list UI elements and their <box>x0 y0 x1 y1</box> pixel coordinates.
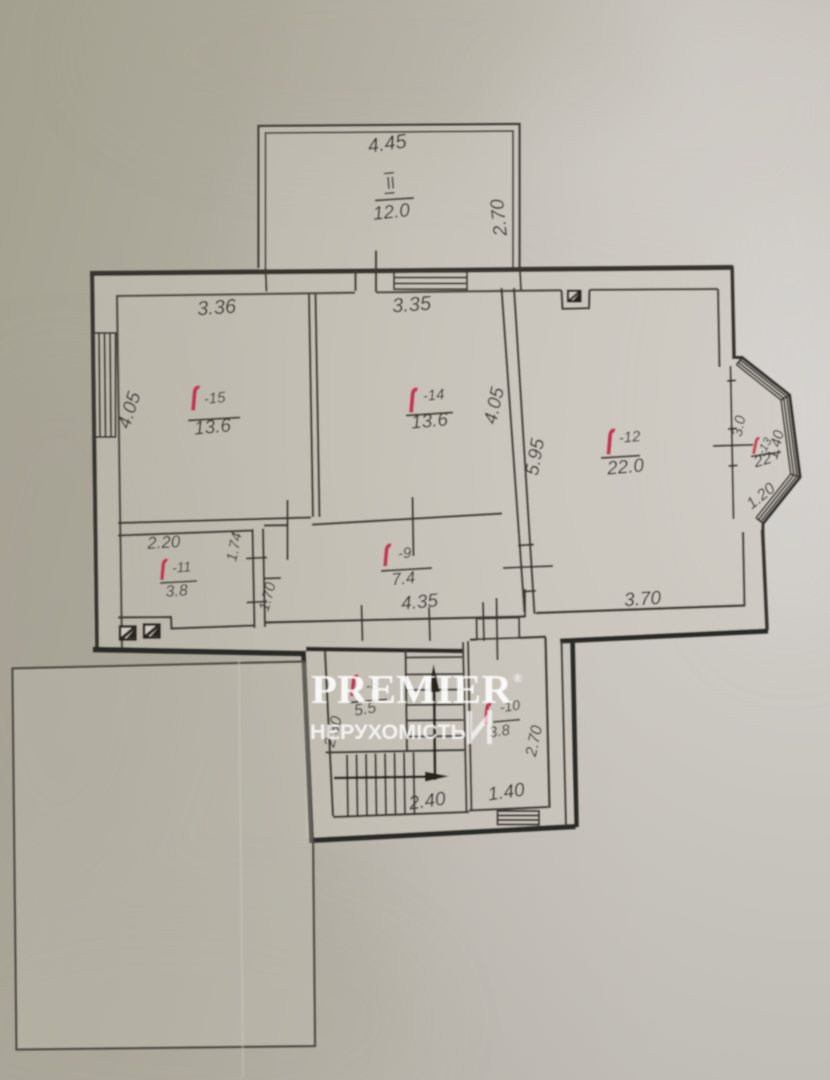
svg-text:-14: -14 <box>422 386 445 405</box>
svg-text:22.0: 22.0 <box>605 455 645 479</box>
svg-text:®: ® <box>513 671 522 685</box>
svg-text:-15: -15 <box>203 389 227 408</box>
svg-text:12.0: 12.0 <box>372 200 411 225</box>
svg-text:2.20: 2.20 <box>146 532 182 553</box>
svg-text:PREMIER: PREMIER <box>311 666 512 712</box>
svg-text:3.70: 3.70 <box>623 588 662 612</box>
svg-text:3.8: 3.8 <box>165 582 188 601</box>
svg-text:-11: -11 <box>171 558 192 576</box>
svg-text:2.70: 2.70 <box>487 198 512 238</box>
svg-text:13.6: 13.6 <box>193 415 232 439</box>
svg-text:-12: -12 <box>618 428 642 447</box>
svg-text:3.35: 3.35 <box>391 293 432 318</box>
svg-text:3.36: 3.36 <box>196 296 237 321</box>
svg-text:7.4: 7.4 <box>391 568 416 589</box>
svg-text:НЕРУХОМІСТЬ: НЕРУХОМІСТЬ <box>310 721 466 744</box>
svg-text:4.35: 4.35 <box>400 590 439 614</box>
svg-text:-9: -9 <box>397 544 412 562</box>
svg-text:13.6: 13.6 <box>410 409 449 433</box>
